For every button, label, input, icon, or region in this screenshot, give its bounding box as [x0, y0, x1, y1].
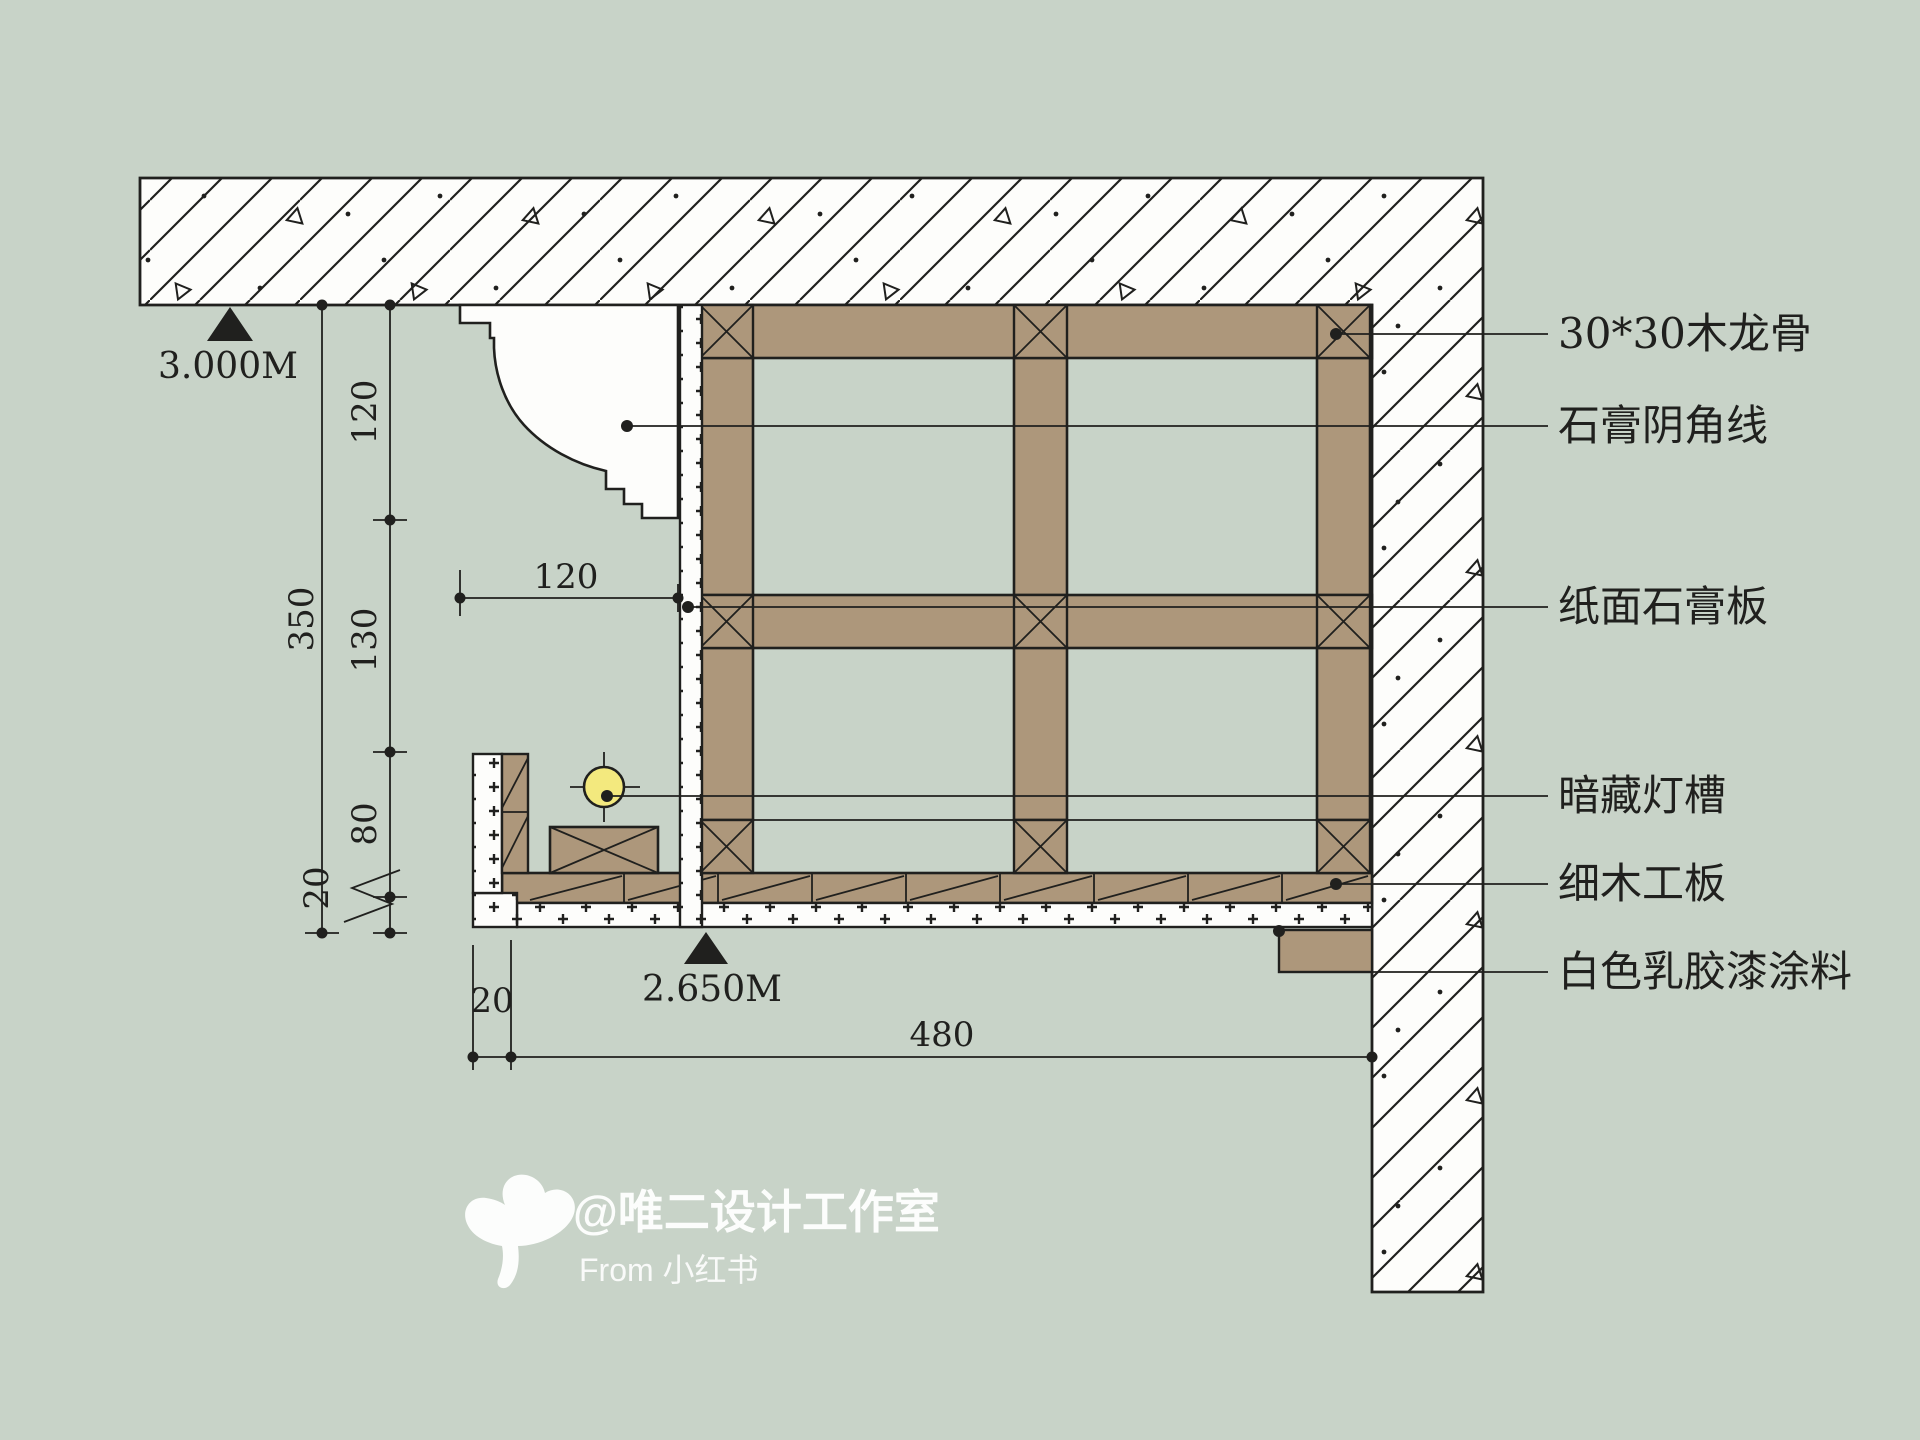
gypsum-board-vertical-face	[680, 305, 702, 927]
label-light-trough: 暗藏灯槽	[1558, 771, 1726, 820]
blockboard-base	[502, 873, 1372, 903]
dimension-lines: 350 120 130 80 20 120 20 480	[282, 300, 1378, 1071]
dim-20-left: 20	[297, 866, 337, 909]
label-gypsum-board: 纸面石膏板	[1558, 582, 1768, 631]
ceiling-detail-drawing: 350 120 130 80 20 120 20 480 3.000M 2.65…	[0, 0, 1920, 1440]
dim-130: 130	[345, 608, 385, 673]
label-white-paint: 白色乳胶漆涂料	[1558, 947, 1852, 996]
dim-480: 480	[910, 1015, 975, 1055]
trough-blocking	[550, 827, 658, 873]
wall-edge-step	[1279, 930, 1372, 972]
label-wood-keel: 30*30木龙骨	[1558, 309, 1812, 358]
crown-molding	[460, 305, 678, 518]
lamp-icon	[570, 752, 640, 822]
watermark-handle: @唯二设计工作室	[573, 1186, 940, 1238]
watermark: @唯二设计工作室 From 小红书	[465, 1175, 940, 1289]
heart-logo-icon	[465, 1175, 575, 1289]
watermark-source: From 小红书	[579, 1252, 759, 1288]
label-blockboard: 细木工板	[1558, 859, 1726, 908]
drawing-canvas: 350 120 130 80 20 120 20 480 3.000M 2.65…	[0, 0, 1920, 1440]
dim-80: 80	[345, 802, 385, 845]
trough-side-panel	[502, 754, 528, 873]
label-crown-molding: 石膏阴角线	[1558, 401, 1768, 450]
level-triangle-top	[207, 307, 253, 341]
dim-120-horizontal: 120	[534, 557, 599, 597]
level-top: 3.000M	[158, 346, 298, 387]
dim-350: 350	[282, 587, 322, 652]
level-triangle-bottom	[684, 932, 728, 964]
wood-keel-grid	[680, 305, 1372, 873]
dim-120-vertical: 120	[345, 380, 385, 445]
dim-20-bottom: 20	[470, 981, 513, 1021]
level-bottom: 2.650M	[642, 969, 782, 1010]
